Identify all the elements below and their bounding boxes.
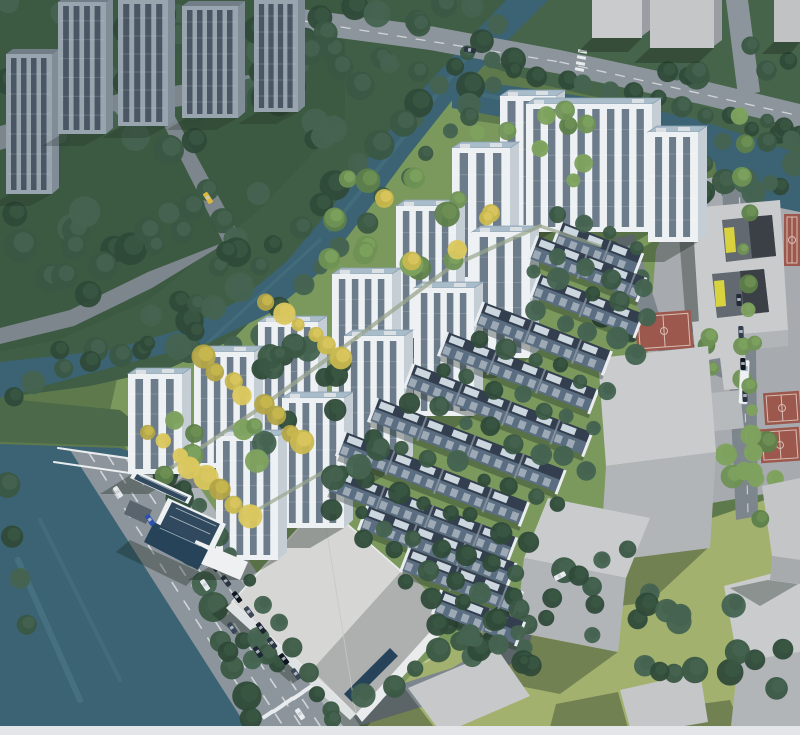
masterplan-aerial-rendering	[0, 0, 800, 735]
viewport	[0, 0, 800, 735]
bottom-frame-strip	[0, 726, 800, 735]
